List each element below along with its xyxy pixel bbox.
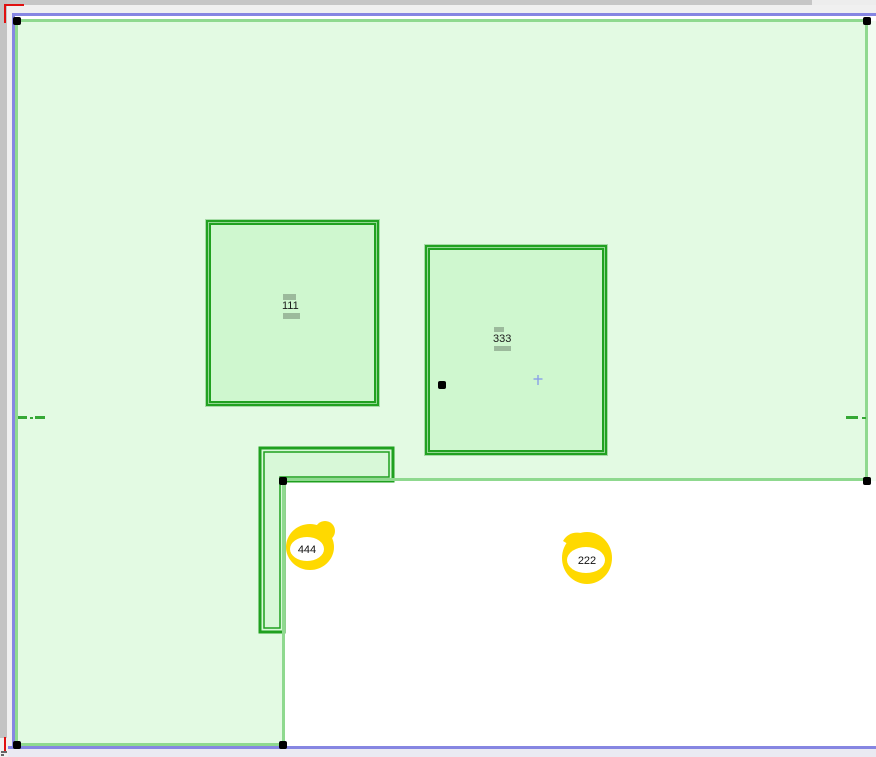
wall-edge-right[interactable] — [865, 19, 868, 482]
wall-edge-top[interactable] — [15, 19, 868, 22]
selection-outline-top — [12, 13, 876, 16]
h-scrollbar-thumb[interactable] — [0, 0, 812, 5]
midline-marker-left-dash — [18, 416, 27, 419]
origin-marker-horizontal — [4, 4, 24, 6]
highlight-222-label: 222 — [578, 555, 596, 567]
highlight-222[interactable]: 222 — [559, 529, 615, 587]
room-333-tag-bar-top — [494, 327, 504, 332]
midline-marker-right-dot — [862, 417, 866, 419]
origin-marker-vertical — [4, 4, 6, 23]
floor-polygon-right-margin — [868, 21, 876, 481]
highlight-444-label: 444 — [298, 544, 316, 556]
v-scrollbar-thumb[interactable] — [0, 0, 7, 738]
floorplan-editor-window: 111 333 444 22 — [0, 0, 876, 757]
wall-edge-notch-top[interactable] — [282, 478, 868, 481]
midline-marker-left-dot — [30, 417, 33, 419]
room-333-tag-bar-bottom — [494, 346, 511, 351]
canvas-lower-margin — [8, 749, 876, 757]
vertex-handle-top-left[interactable] — [13, 17, 21, 25]
highlight-444[interactable]: 444 — [284, 519, 338, 573]
wall-edge-left[interactable] — [15, 19, 18, 746]
vertex-handle-bottom-notch[interactable] — [279, 741, 287, 749]
midline-marker-left-dash2 — [35, 416, 45, 419]
corner-resize-glyph-small — [1, 754, 4, 756]
floor-polygon-fill-lower[interactable] — [17, 481, 284, 745]
room-111-label: 111 — [282, 300, 299, 312]
vertex-handle-room333[interactable] — [438, 381, 446, 389]
midline-marker-right-dash — [846, 416, 858, 419]
vertex-handle-top-right[interactable] — [863, 17, 871, 25]
corner-resize-glyph — [1, 751, 7, 753]
vertex-handle-bottom-left[interactable] — [13, 741, 21, 749]
room-333[interactable] — [425, 245, 607, 455]
cursor-cross-icon — [532, 374, 544, 386]
selection-outline-bottom — [8, 746, 876, 749]
room-333-label: 333 — [493, 333, 511, 345]
vertex-handle-right-notch[interactable] — [863, 477, 871, 485]
selection-outline-left — [12, 13, 15, 749]
ruler-end-marker-bottom — [4, 737, 6, 751]
room-111-tag-bar-bottom — [283, 313, 300, 319]
vertex-handle-inner-corner[interactable] — [279, 477, 287, 485]
